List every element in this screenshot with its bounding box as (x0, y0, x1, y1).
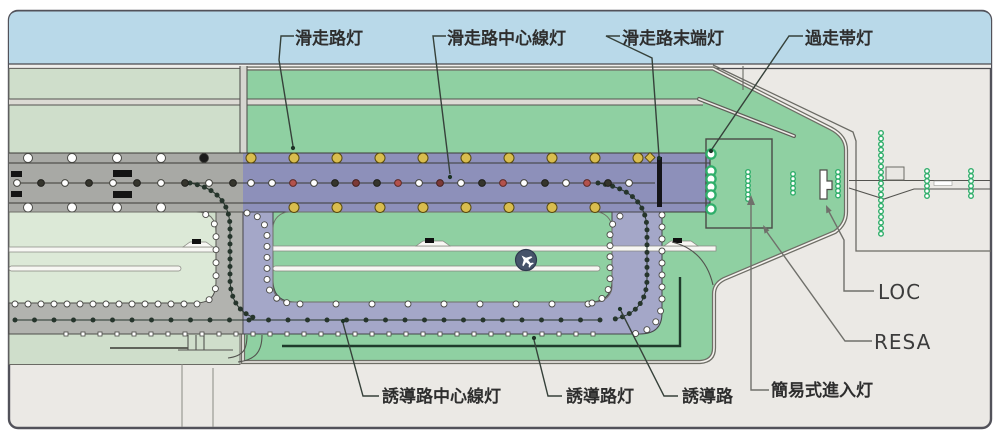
pointer-dot (341, 319, 345, 323)
light-dot (116, 301, 122, 307)
runway-centerline-light (110, 180, 117, 187)
runway-centerline-light (626, 180, 633, 187)
runway-centerline-light (584, 180, 591, 187)
runway-edge-light-white (68, 154, 77, 163)
approach-light (969, 184, 974, 189)
approach-light (879, 142, 884, 147)
label-loc: LOC (878, 280, 921, 304)
approach-light (925, 169, 930, 174)
light-dot (605, 287, 611, 293)
approach-light (879, 204, 884, 209)
runway-edge-light-white (68, 203, 77, 212)
light-dot (230, 294, 235, 299)
light-dot (364, 318, 369, 323)
light-dot (38, 301, 44, 307)
approach-light (879, 232, 884, 237)
runway-centerline-light (269, 180, 276, 187)
light-dot (643, 287, 648, 292)
runway-centerline-light (158, 180, 165, 187)
runway-edge-light-yellow (590, 153, 600, 163)
light-dot (659, 248, 665, 254)
pointer-dot (532, 336, 536, 340)
approach-light (879, 148, 884, 153)
approach-light (879, 176, 884, 181)
runway-edge-light-white (113, 203, 122, 212)
light-dot (641, 294, 646, 299)
runway-edge-light-yellow (418, 153, 428, 163)
light-dot (64, 332, 68, 336)
approach-light (925, 174, 930, 179)
light-dot (228, 279, 233, 284)
light-dot (559, 318, 564, 323)
light-dot (206, 297, 212, 303)
light-dot (387, 332, 391, 336)
light-dot (183, 332, 187, 336)
runway-edge-light-white (157, 203, 166, 212)
light-dot (261, 222, 267, 228)
approach-light (969, 179, 974, 184)
light-dot (481, 318, 486, 323)
light-dot (639, 206, 644, 211)
light-dot (285, 332, 289, 336)
light-dot (659, 296, 665, 302)
light-dot (472, 332, 476, 336)
light-dot (32, 318, 37, 323)
light-dot (627, 311, 632, 316)
light-dot (228, 249, 233, 254)
light-dot (251, 332, 255, 336)
light-dot (653, 319, 659, 325)
light-dot (645, 242, 650, 247)
light-dot (617, 213, 623, 219)
approach-light (879, 164, 884, 169)
light-dot (370, 332, 374, 336)
light-dot (610, 221, 616, 227)
light-dot (659, 212, 665, 218)
light-dot (195, 182, 200, 187)
pointer-dot (618, 307, 622, 311)
light-dot (142, 301, 148, 307)
approach-light (879, 215, 884, 220)
road-structure (425, 238, 434, 243)
light-dot (234, 332, 238, 336)
light-dot (403, 318, 408, 323)
light-dot (212, 286, 218, 292)
light-dot (215, 193, 220, 198)
light-dot (244, 311, 249, 316)
light-dot (228, 242, 233, 247)
light-dot (228, 234, 233, 239)
runway-edge-light-yellow (504, 203, 514, 213)
left-infield (9, 212, 216, 303)
approach-light (879, 187, 884, 192)
runway-centerline-light (62, 180, 69, 187)
light-dot (264, 265, 270, 271)
light-dot (110, 318, 115, 323)
light-dot (223, 205, 228, 210)
light-dot (442, 318, 447, 323)
runway-edge-light-yellow (375, 203, 385, 213)
light-dot (659, 224, 665, 230)
light-dot (645, 272, 650, 277)
light-dot (659, 260, 665, 266)
light-dot (305, 318, 310, 323)
runway-edge-light-yellow (332, 153, 342, 163)
light-dot (441, 301, 447, 307)
label-runway-end-lights: 滑走路末端灯 (622, 28, 724, 49)
light-dot (264, 254, 270, 260)
approach-light (791, 176, 796, 181)
light-dot (217, 332, 221, 336)
upper-road-fill (9, 99, 703, 105)
light-dot (64, 301, 70, 307)
light-dot (213, 273, 219, 279)
light-dot (226, 212, 231, 217)
light-dot (228, 272, 233, 277)
light-dot (383, 318, 388, 323)
light-dot (596, 181, 601, 186)
light-dot (353, 332, 357, 336)
light-dot (13, 318, 18, 323)
boundary-road-fill (240, 66, 247, 153)
light-dot (500, 318, 505, 323)
light-dot (90, 301, 96, 307)
runway-marking (11, 191, 22, 197)
runway-end-bar (657, 157, 662, 207)
zone-boundary-road (240, 66, 247, 153)
light-dot (607, 254, 613, 260)
light-dot (645, 265, 650, 270)
approach-light (836, 179, 841, 184)
light-dot (598, 318, 603, 323)
light-dot (607, 243, 613, 249)
light-dot (617, 186, 622, 191)
approach-light (879, 209, 884, 214)
approach-light (791, 172, 796, 177)
label-overrun-lights: 過走帯灯 (805, 28, 873, 49)
light-dot (455, 332, 459, 336)
light-dot (220, 198, 225, 203)
light-dot (591, 332, 595, 336)
infield-road (9, 266, 181, 271)
runway-centerline-light (353, 180, 360, 187)
runway-edge-light-yellow (289, 203, 299, 213)
light-dot (630, 194, 635, 199)
upper-road (9, 99, 703, 105)
light-dot (267, 287, 273, 293)
light-dot (539, 318, 544, 323)
approach-light (791, 191, 796, 196)
approach-light (836, 184, 841, 189)
light-dot (659, 272, 665, 278)
light-dot (208, 318, 213, 323)
approach-light (836, 189, 841, 194)
light-dot (659, 284, 665, 290)
approach-light (969, 174, 974, 179)
light-dot (91, 318, 96, 323)
light-dot (168, 301, 174, 307)
light-dot (188, 318, 193, 323)
runway-edge-light-yellow (461, 203, 471, 213)
light-dot (644, 327, 650, 333)
light-dot (52, 318, 57, 323)
light-dot (284, 300, 290, 306)
aircraft-symbol (516, 250, 537, 271)
light-dot (421, 332, 425, 336)
label-resa: RESA (874, 330, 931, 354)
light-dot (200, 332, 204, 336)
pointer-dot (657, 156, 661, 160)
runway-centerline-light (230, 180, 237, 187)
light-dot (203, 212, 209, 218)
light-dot (477, 301, 483, 307)
approach-light (879, 131, 884, 136)
light-dot (227, 219, 232, 224)
runway-centerline-light (563, 180, 570, 187)
approach-light (836, 170, 841, 175)
pointer-dot (448, 175, 452, 179)
light-dot (181, 301, 187, 307)
light-dot (115, 332, 119, 336)
light-dot (633, 307, 638, 312)
light-dot (574, 332, 578, 336)
light-dot (12, 301, 18, 307)
runway-centerline-light (500, 180, 507, 187)
light-dot (71, 318, 76, 323)
light-dot (98, 332, 102, 336)
light-dot (228, 257, 233, 262)
light-dot (264, 276, 270, 282)
light-dot (130, 318, 135, 323)
light-dot (254, 214, 260, 220)
runway-centerline-light (38, 180, 45, 187)
light-dot (589, 300, 595, 306)
light-dot (607, 276, 613, 282)
approach-light (879, 170, 884, 175)
approach-light (925, 184, 930, 189)
label-runway-edge-lights: 滑走路灯 (295, 28, 363, 49)
runway-centerline-light (416, 180, 423, 187)
approach-light (879, 192, 884, 197)
light-dot (268, 332, 272, 336)
runway-marking (113, 170, 132, 177)
light-dot (264, 232, 270, 238)
approach-light (969, 189, 974, 194)
airport-lighting-diagram: 滑走路灯 滑走路中心線灯 滑走路末端灯 過走帯灯 誘導路中心線灯 誘導路灯 誘導… (0, 0, 1001, 432)
light-dot (77, 301, 83, 307)
light-dot (129, 301, 135, 307)
runway-edge-light-yellow (461, 153, 471, 163)
label-taxiway: 誘導路 (682, 386, 734, 407)
light-dot (228, 286, 233, 291)
light-dot (405, 301, 411, 307)
runway-edge-light-yellow (590, 203, 600, 213)
light-dot (645, 235, 650, 240)
approach-light (925, 179, 930, 184)
runway-edge-light-yellow (633, 153, 643, 163)
runway-edge-light-yellow (504, 153, 514, 163)
light-dot (336, 332, 340, 336)
infield-road (273, 266, 600, 271)
light-dot (81, 332, 85, 336)
light-dot (513, 301, 519, 307)
light-dot (51, 301, 57, 307)
light-dot (213, 247, 219, 253)
light-dot (645, 250, 650, 255)
runway-centerline-light (86, 180, 93, 187)
light-dot (266, 318, 271, 323)
light-dot (149, 318, 154, 323)
light-dot (549, 301, 555, 307)
light-dot (213, 234, 219, 240)
runway-centerline-light (542, 180, 549, 187)
light-dot (247, 318, 252, 323)
label-simple-approach-lights: 簡易式進入灯 (770, 380, 873, 401)
light-dot (244, 210, 250, 216)
overrun-light (706, 204, 715, 213)
light-dot (540, 332, 544, 336)
runway-centerline-light (458, 180, 465, 187)
light-dot (211, 221, 217, 227)
pointer-dot (291, 146, 295, 150)
light-dot (607, 232, 613, 238)
runway-centerline-light (374, 180, 381, 187)
light-dot (213, 260, 219, 266)
approach-light (969, 194, 974, 199)
runway-edge-light-yellow (375, 153, 385, 163)
approach-light (879, 198, 884, 203)
light-dot (642, 213, 647, 218)
light-dot (644, 280, 649, 285)
approach-light (879, 226, 884, 231)
light-dot (274, 295, 280, 301)
runway-edge-light-yellow (332, 203, 342, 213)
light-dot (228, 227, 233, 232)
light-dot (659, 236, 665, 242)
runway-centerline-light (248, 180, 255, 187)
light-dot (227, 318, 232, 323)
light-dot (333, 301, 339, 307)
light-dot (149, 332, 153, 336)
light-dot (194, 301, 200, 307)
approach-light (925, 194, 930, 199)
runway-centerline-light (182, 180, 189, 187)
road-white-dash (934, 181, 952, 186)
runway-edge-light-yellow (246, 153, 256, 163)
approach-light (836, 174, 841, 179)
runway-centerline-light (437, 180, 444, 187)
runway-edge-light-white (157, 154, 166, 163)
runway-edge-light-white (113, 154, 122, 163)
light-dot (302, 332, 306, 336)
runway-edge-light-yellow (547, 153, 557, 163)
approach-light (879, 153, 884, 158)
runway-centerline-light (605, 180, 612, 187)
approach-light (879, 181, 884, 186)
approach-light (879, 220, 884, 225)
displaced-threshold-light (200, 154, 209, 163)
light-dot (319, 332, 323, 336)
light-dot (369, 301, 375, 307)
road-structure-box (886, 167, 904, 180)
light-dot (599, 295, 605, 301)
light-dot (523, 332, 527, 336)
light-dot (489, 332, 493, 336)
overrun-light (706, 190, 715, 199)
runway-edge-light-yellow (547, 203, 557, 213)
light-dot (557, 332, 561, 336)
runway-centerline-light (290, 180, 297, 187)
runway-marking (11, 171, 22, 177)
runway-centerline-light (14, 180, 21, 187)
light-dot (645, 227, 650, 232)
label-taxiway-edge-lights: 誘導路灯 (566, 386, 634, 407)
light-dot (645, 257, 650, 262)
runway-edge-light-yellow (418, 203, 428, 213)
light-dot (506, 332, 510, 336)
light-dot (297, 301, 303, 307)
light-dot (658, 308, 664, 314)
light-dot (635, 199, 640, 204)
runway-marking (113, 191, 132, 198)
label-taxiway-centerline-lights: 誘導路中心線灯 (382, 386, 501, 407)
runway-centerline-light (479, 180, 486, 187)
runway-centerline-light (395, 180, 402, 187)
light-dot (624, 190, 629, 195)
runway-edge-light-yellow (289, 153, 299, 163)
light-dot (166, 332, 170, 336)
light-dot (209, 188, 214, 193)
pointer-dot (709, 149, 713, 153)
runway-centerline-light (332, 180, 339, 187)
approach-light (925, 189, 930, 194)
light-dot (103, 301, 109, 307)
runway-centerline-light (134, 180, 141, 187)
light-dot (461, 318, 466, 323)
light-dot (438, 332, 442, 336)
light-dot (25, 301, 31, 307)
runway-centerline-light (206, 180, 213, 187)
diagram-canvas: 滑走路灯 滑走路中心線灯 滑走路末端灯 過走帯灯 誘導路中心線灯 誘導路灯 誘導… (0, 0, 1001, 432)
approach-light (836, 193, 841, 198)
approach-light (879, 136, 884, 141)
label-runway-centerline-lights: 滑走路中心線灯 (447, 28, 566, 49)
road-structure (192, 239, 201, 244)
runway-edge-light-white (24, 154, 33, 163)
light-dot (422, 318, 427, 323)
light-dot (325, 318, 330, 323)
approach-light (969, 169, 974, 174)
light-dot (264, 243, 270, 249)
infield-road (9, 247, 216, 252)
light-dot (132, 332, 136, 336)
light-dot (233, 301, 238, 306)
light-dot (638, 301, 643, 306)
light-dot (155, 301, 161, 307)
light-dot (520, 318, 525, 323)
light-dot (238, 307, 243, 312)
light-dot (169, 318, 174, 323)
light-dot (228, 264, 233, 269)
light-dot (404, 332, 408, 336)
infield-road (273, 246, 716, 251)
light-dot (607, 265, 613, 271)
light-dot (578, 318, 583, 323)
light-dot (644, 220, 649, 225)
approach-light (791, 181, 796, 186)
runway-centerline-light (521, 180, 528, 187)
light-dot (286, 318, 291, 323)
